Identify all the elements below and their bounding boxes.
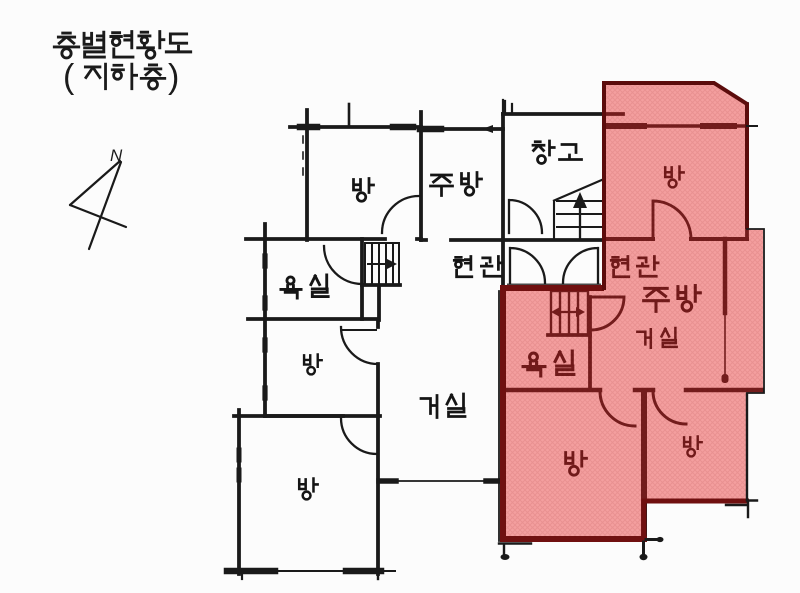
svg-text:): ) xyxy=(168,58,179,96)
svg-text:N: N xyxy=(110,146,123,165)
svg-text:(: ( xyxy=(63,58,75,96)
